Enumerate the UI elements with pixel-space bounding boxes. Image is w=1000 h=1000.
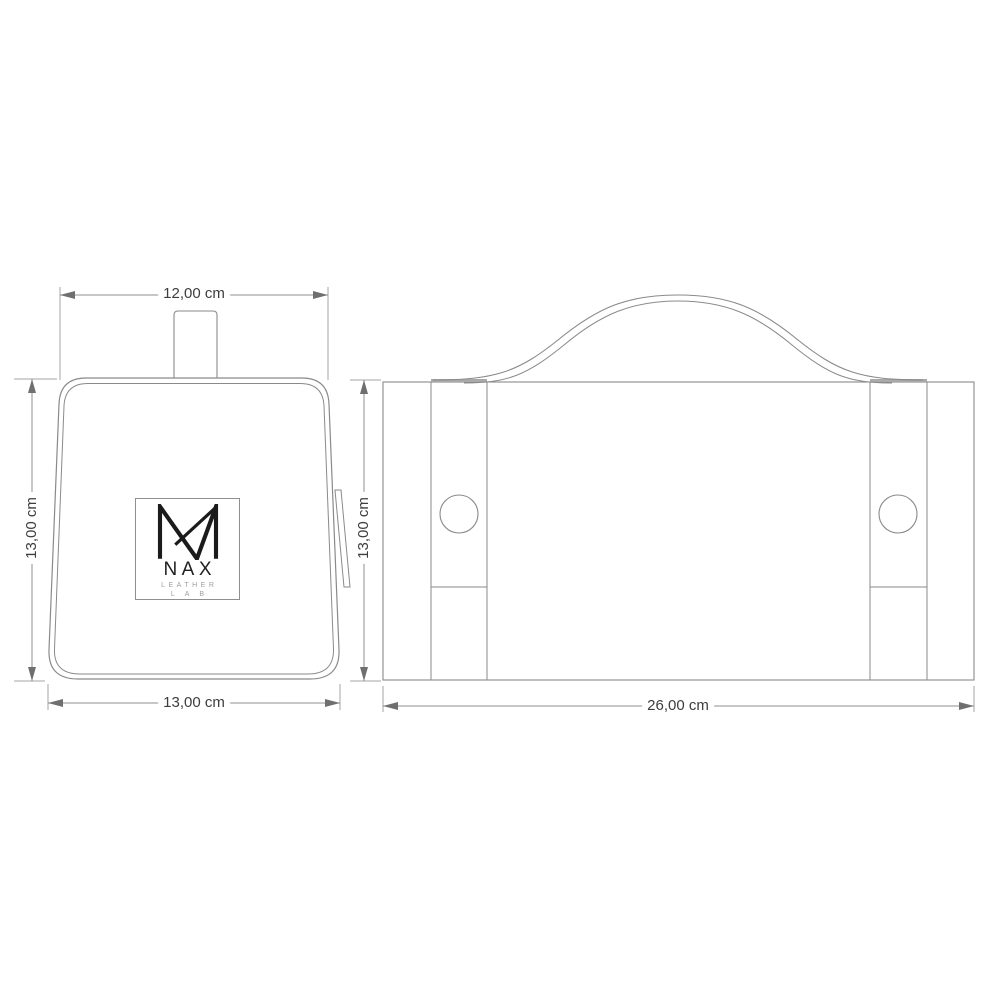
front-view-body [383, 382, 974, 680]
arrowhead-up [360, 380, 368, 394]
front-view-left-snap-button [440, 495, 478, 533]
arrowhead-right [313, 291, 328, 299]
arrowhead-right [325, 699, 340, 707]
arrowhead-down [360, 667, 368, 681]
front-view-handle-inner-curve [464, 301, 892, 383]
front-view-handle-outer-curve [433, 295, 923, 380]
bag-front-view [383, 295, 974, 680]
side-view-bottom-width-label: 13,00 cm [158, 695, 230, 712]
arrowhead-down [28, 667, 36, 681]
side-view-top-tab [174, 311, 217, 378]
front-view-right-snap-button [879, 495, 917, 533]
bag-side-view [49, 311, 350, 679]
arrowhead-left [60, 291, 75, 299]
drawing-page: 12,00 cm 13,00 cm 13,00 cm 13,00 cm 26,0… [0, 0, 1000, 1000]
front-view-height-label: 13,00 cm [356, 492, 373, 564]
arrowhead-right [959, 702, 974, 710]
side-view-height-label: 13,00 cm [24, 492, 41, 564]
arrowhead-left [383, 702, 398, 710]
logo-brand-text: NAX [159, 560, 216, 579]
front-view-width-label: 26,00 cm [642, 698, 714, 715]
arrowhead-up [28, 379, 36, 393]
arrowhead-left [48, 699, 63, 707]
logo-subtitle-lab: LAB [161, 591, 214, 598]
side-view-strap-edge [335, 490, 350, 587]
logo-subtitle-leather: LEATHER [158, 582, 218, 589]
nax-monogram-icon [155, 504, 221, 560]
logo-patch: NAX LEATHER LAB [135, 498, 240, 600]
side-view-top-width-label: 12,00 cm [158, 286, 230, 303]
